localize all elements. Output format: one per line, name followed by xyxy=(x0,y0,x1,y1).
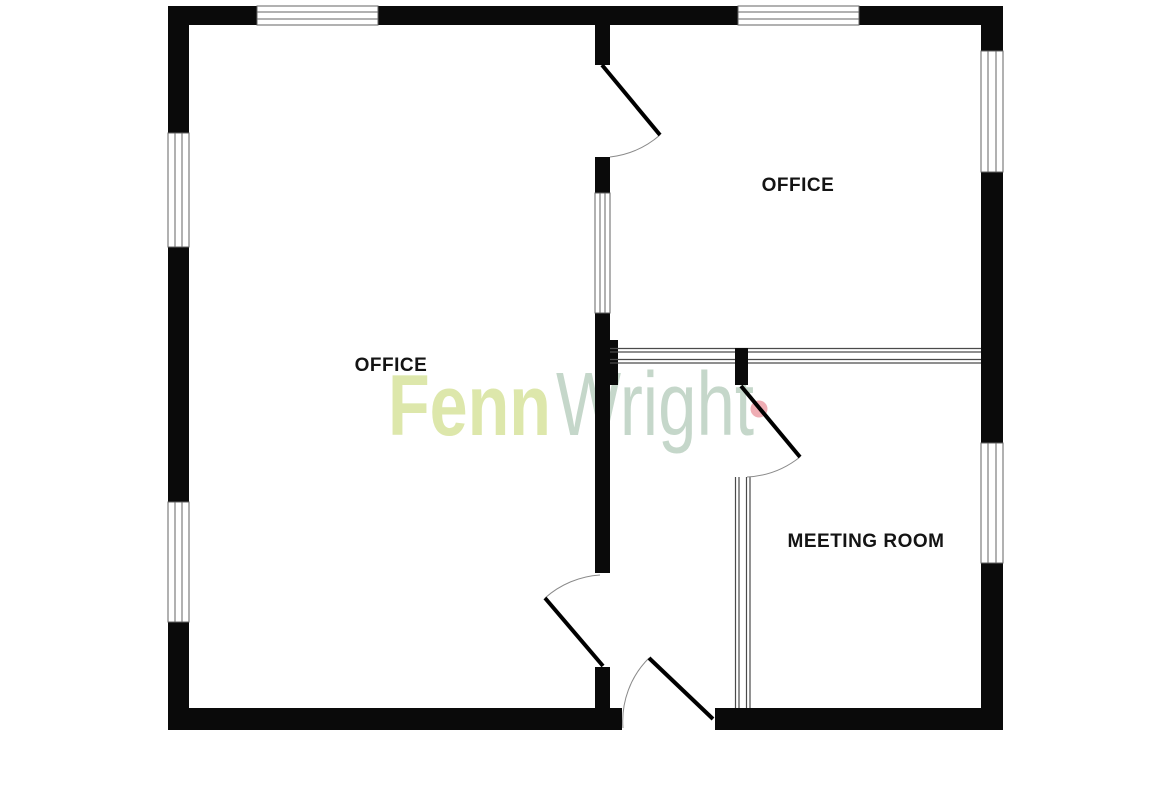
room-label-office-left: OFFICE xyxy=(355,355,428,376)
door-swing xyxy=(602,65,660,157)
window xyxy=(981,443,1003,563)
door-arc xyxy=(747,457,800,477)
door-arc xyxy=(545,575,600,598)
door-leaf xyxy=(602,65,660,135)
room-label-office-right: OFFICE xyxy=(762,175,835,196)
wall-interior-segment xyxy=(595,313,610,573)
windows xyxy=(168,6,1003,622)
room-label-meeting-room: MEETING ROOM xyxy=(788,531,945,552)
floor-plan: Fenn Wright xyxy=(0,0,1170,785)
wall-interior-segment xyxy=(595,157,610,193)
window xyxy=(168,133,189,247)
floorplan-canvas: Fenn Wright xyxy=(0,0,1170,785)
partition-vertical xyxy=(736,477,751,708)
window xyxy=(981,51,1003,172)
fennwright-logo: Fenn Wright xyxy=(388,355,768,455)
door-swing xyxy=(545,575,603,666)
entrance-opening xyxy=(622,707,715,731)
window xyxy=(738,6,859,25)
window xyxy=(168,502,189,622)
door-arc xyxy=(610,135,660,157)
wall-interior-segment xyxy=(595,25,610,65)
window-interior xyxy=(595,193,610,313)
window xyxy=(257,6,378,25)
partition-door-post xyxy=(735,348,748,385)
wall-bottom xyxy=(168,708,1003,730)
logo-text-wright: Wright xyxy=(556,355,754,455)
door-leaf xyxy=(545,598,603,666)
wall-interior-segment xyxy=(595,667,610,708)
